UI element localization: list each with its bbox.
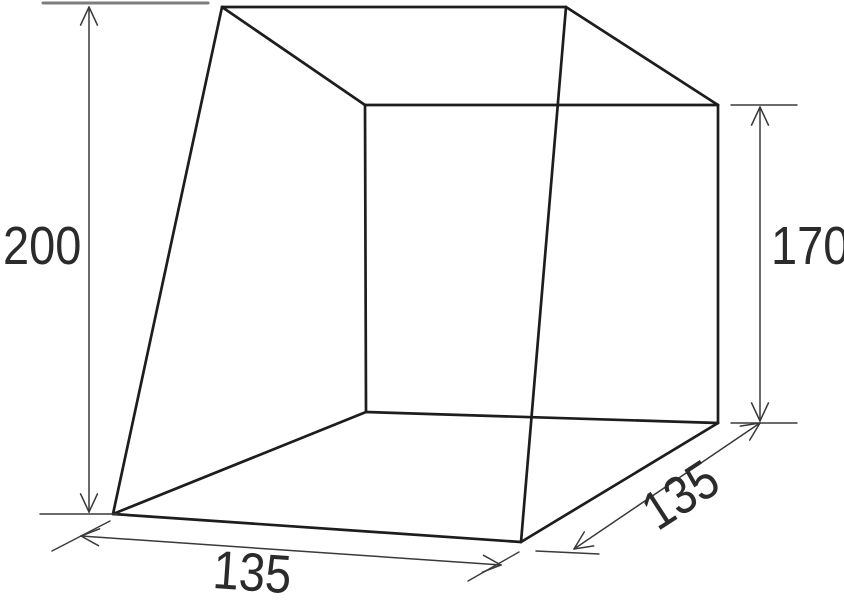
edge-B-F [521,7,566,542]
height-left-arrowhead [81,494,89,512]
edge-A-E [113,7,222,514]
depth-right-arrowhead [574,532,584,549]
height-right-arrowhead [752,107,760,125]
height-right-arrowhead [760,403,768,421]
edge-B-C [566,7,718,105]
height-left-arrowhead [89,7,97,25]
dimension-label-height-left: 200 [3,219,81,273]
height-left-arrowhead [89,494,97,512]
diagram-canvas: 200 170 135 135 [0,0,844,600]
width-front-extension-line [468,552,519,581]
edge-G-H [366,412,718,423]
depth-right-extension-line [536,551,599,554]
edge-D-A [222,7,365,105]
dimension-label-width-front: 135 [211,543,293,600]
height-left-arrowhead [81,7,89,25]
edge-D-H [365,105,366,412]
dimension-label-height-right: 170 [771,219,844,273]
height-right-arrowhead [760,107,768,125]
depth-right-arrowhead [750,423,760,440]
height-right-arrowhead [752,403,760,421]
width-front-arrowhead [482,565,501,572]
tent-wireframe-svg [0,0,844,600]
edge-E-F [113,514,521,542]
width-front-arrowhead [81,529,100,536]
edge-H-E [113,412,366,514]
